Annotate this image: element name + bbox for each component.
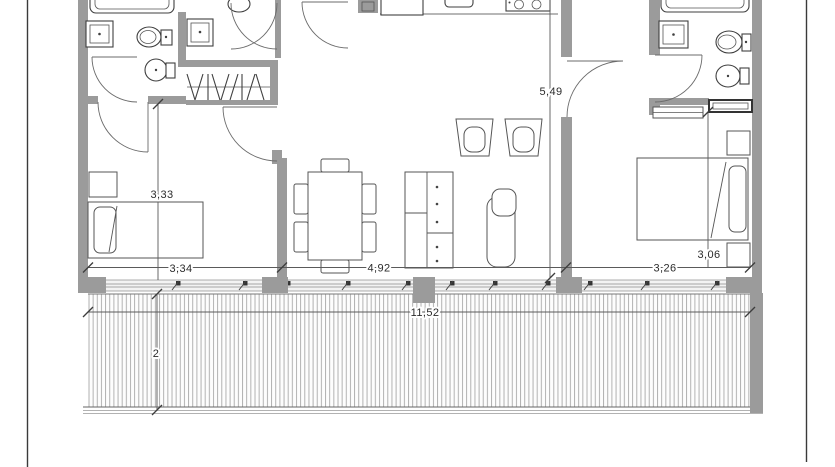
bath-cabinet: [709, 100, 752, 112]
wall-wardrobe-bottom: [186, 100, 270, 105]
dining-chair: [362, 222, 376, 252]
washbasin-drain: [98, 33, 101, 36]
wall-exterior-right: [752, 0, 762, 293]
toilet: [137, 27, 161, 47]
dining-chair: [362, 184, 376, 214]
lounge-chair-back: [492, 189, 516, 216]
sideboard: [405, 172, 453, 268]
wall-living-right-bottom: [561, 117, 572, 277]
cooktop: [506, 0, 550, 11]
wall-living-right-top: [561, 0, 572, 57]
toilet-button: [165, 36, 167, 38]
wall-pier-1: [78, 277, 106, 293]
dimension-label-terrace-width: 11,52: [411, 307, 440, 319]
floor-plan-sheet: 3,33 3,34 4,92 5,49 3,26 3,06 11,52 2: [0, 0, 835, 467]
appliance-box: [381, 0, 423, 15]
dimension-label-bedroom-right-width: 3,26: [653, 263, 676, 275]
nightstand: [727, 131, 750, 155]
wall-pier-4: [556, 277, 582, 293]
wall-bedroom-left-living: [277, 158, 287, 277]
bidet-drain: [155, 69, 157, 71]
dimension-label-bedroom-left-depth: 3,33: [150, 189, 173, 201]
wall-wardrobe-right: [270, 60, 278, 105]
floor-plan-svg: 3,33 3,34 4,92 5,49 3,26 3,06 11,52 2: [0, 0, 835, 467]
dimension-label-terrace-depth: 2: [153, 348, 160, 360]
dimension-label-bedroom-left-width: 3,34: [169, 263, 192, 275]
toilet: [716, 31, 742, 53]
kitchen-sink: [445, 0, 473, 7]
dining-chair: [321, 260, 349, 273]
dining-chair: [294, 184, 308, 214]
dimension-label-bedroom-right-depth: 3,06: [697, 249, 720, 261]
wall-bath-left-divider: [178, 12, 186, 62]
armchair-cushion: [513, 127, 534, 152]
nightstand: [89, 172, 117, 197]
wall-pier-center: [413, 277, 435, 303]
wall-bath-right-left-a: [649, 0, 660, 55]
armchair-cushion: [464, 127, 485, 152]
dimension-label-living-width: 4,92: [367, 263, 390, 275]
bidet-tap: [166, 63, 175, 78]
bidet-tap: [740, 68, 749, 84]
toilet-button: [745, 41, 747, 43]
bidet-drain: [727, 75, 729, 77]
dining-chair: [321, 159, 349, 172]
dining-chair: [294, 222, 308, 252]
wc-washbasin-drain: [199, 31, 202, 34]
bathtub: [90, 0, 174, 13]
wall-wardrobe-top: [178, 60, 278, 67]
washbasin-drain: [672, 33, 675, 36]
wall-bedroom-left-top-a: [78, 96, 98, 104]
wall-bedroom-left-top-b: [148, 96, 186, 104]
terrace-right-cap-wall: [750, 293, 763, 413]
bathtub: [661, 0, 749, 12]
dimension-label-interior-depth: 5,49: [539, 86, 562, 98]
dining-table: [308, 172, 362, 260]
cooktop-knob: [509, 2, 511, 4]
nightstand: [727, 243, 750, 267]
wall-pier-5: [726, 277, 762, 293]
pillow: [729, 166, 746, 232]
wall-pier-2: [262, 277, 288, 293]
